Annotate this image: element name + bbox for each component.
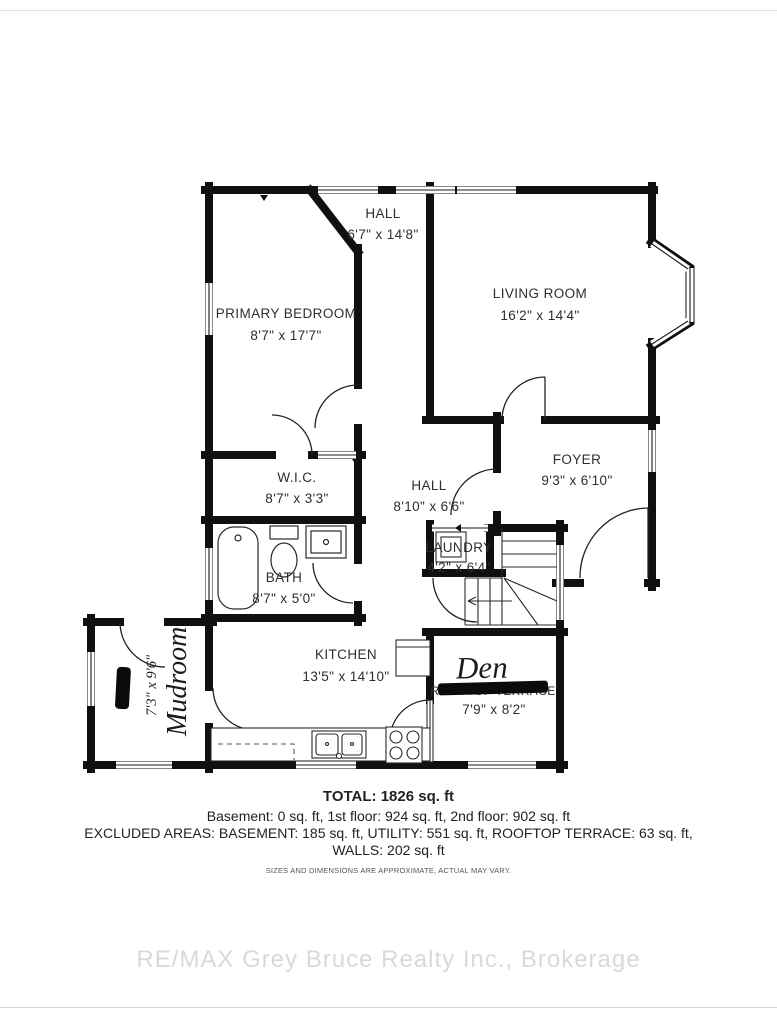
kitchen-door-arc bbox=[213, 688, 255, 730]
room-dims-wic: 8'7" x 3'3" bbox=[265, 491, 328, 506]
room-label-hall-upper: HALL bbox=[365, 206, 400, 221]
room-dims-primary-bedroom: 8'7" x 17'7" bbox=[250, 328, 321, 343]
room-dims-kitchen: 13'5" x 14'10" bbox=[302, 669, 389, 684]
walls-area: WALLS: 202 sq. ft bbox=[0, 842, 777, 858]
mudroom-label-strikeout bbox=[115, 667, 131, 710]
toilet-icon bbox=[270, 526, 298, 539]
room-label-living-room: LIVING ROOM bbox=[493, 286, 587, 301]
bath-door-arc bbox=[313, 563, 353, 603]
room-dims-living-room: 16'2" x 14'4" bbox=[500, 308, 579, 323]
room-dims-bath: 8'7" x 5'0" bbox=[252, 591, 315, 606]
room-label-foyer: FOYER bbox=[553, 452, 602, 467]
room-dims-mudroom: 7'3" x 9'6" bbox=[144, 654, 160, 716]
room-label-mudroom: Mudroom bbox=[162, 627, 193, 737]
door-arcs bbox=[120, 377, 648, 740]
front-door-arc bbox=[580, 508, 648, 578]
wic-door-arc bbox=[272, 415, 312, 455]
stove-icon bbox=[386, 727, 422, 763]
room-dims-hall-upper: 6'7" x 14'8" bbox=[347, 227, 418, 242]
excluded-areas: EXCLUDED AREAS: BASEMENT: 185 sq. ft, UT… bbox=[0, 825, 777, 841]
brokerage-watermark: RE/MAX Grey Bruce Realty Inc., Brokerage bbox=[0, 946, 777, 974]
floor-plan-page: HALL 6'7" x 14'8" LIVING ROOM 16'2" x 14… bbox=[0, 0, 777, 1024]
bedroom-door-arc bbox=[315, 385, 358, 428]
floor-areas: Basement: 0 sq. ft, 1st floor: 924 sq. f… bbox=[0, 808, 777, 824]
area-summary: TOTAL: 1826 sq. ft Basement: 0 sq. ft, 1… bbox=[0, 788, 777, 875]
room-label-wic: W.I.C. bbox=[277, 470, 316, 485]
kitchen-sink-icon bbox=[312, 731, 366, 759]
room-dims-hall-lower: 8'10" x 6'6" bbox=[393, 499, 464, 514]
room-dims-den: 7'9" x 8'2" bbox=[462, 702, 525, 717]
room-dims-foyer: 9'3" x 6'10" bbox=[541, 473, 612, 488]
living-room-door-arc bbox=[502, 377, 545, 420]
room-dims-laundry: 4'2" x 6'4" bbox=[427, 560, 490, 575]
room-label-bath: BATH bbox=[266, 570, 303, 585]
refrigerator-icon bbox=[396, 640, 430, 676]
room-label-primary-bedroom: PRIMARY BEDROOM bbox=[216, 306, 357, 321]
room-label-den: Den bbox=[455, 650, 508, 686]
total-area: TOTAL: 1826 sq. ft bbox=[0, 788, 777, 805]
room-label-laundry: LAUNDRY bbox=[425, 540, 492, 555]
room-label-kitchen: KITCHEN bbox=[315, 647, 377, 662]
disclaimer: SIZES AND DIMENSIONS ARE APPROXIMATE, AC… bbox=[0, 866, 777, 875]
room-label-hall-lower: HALL bbox=[411, 478, 446, 493]
